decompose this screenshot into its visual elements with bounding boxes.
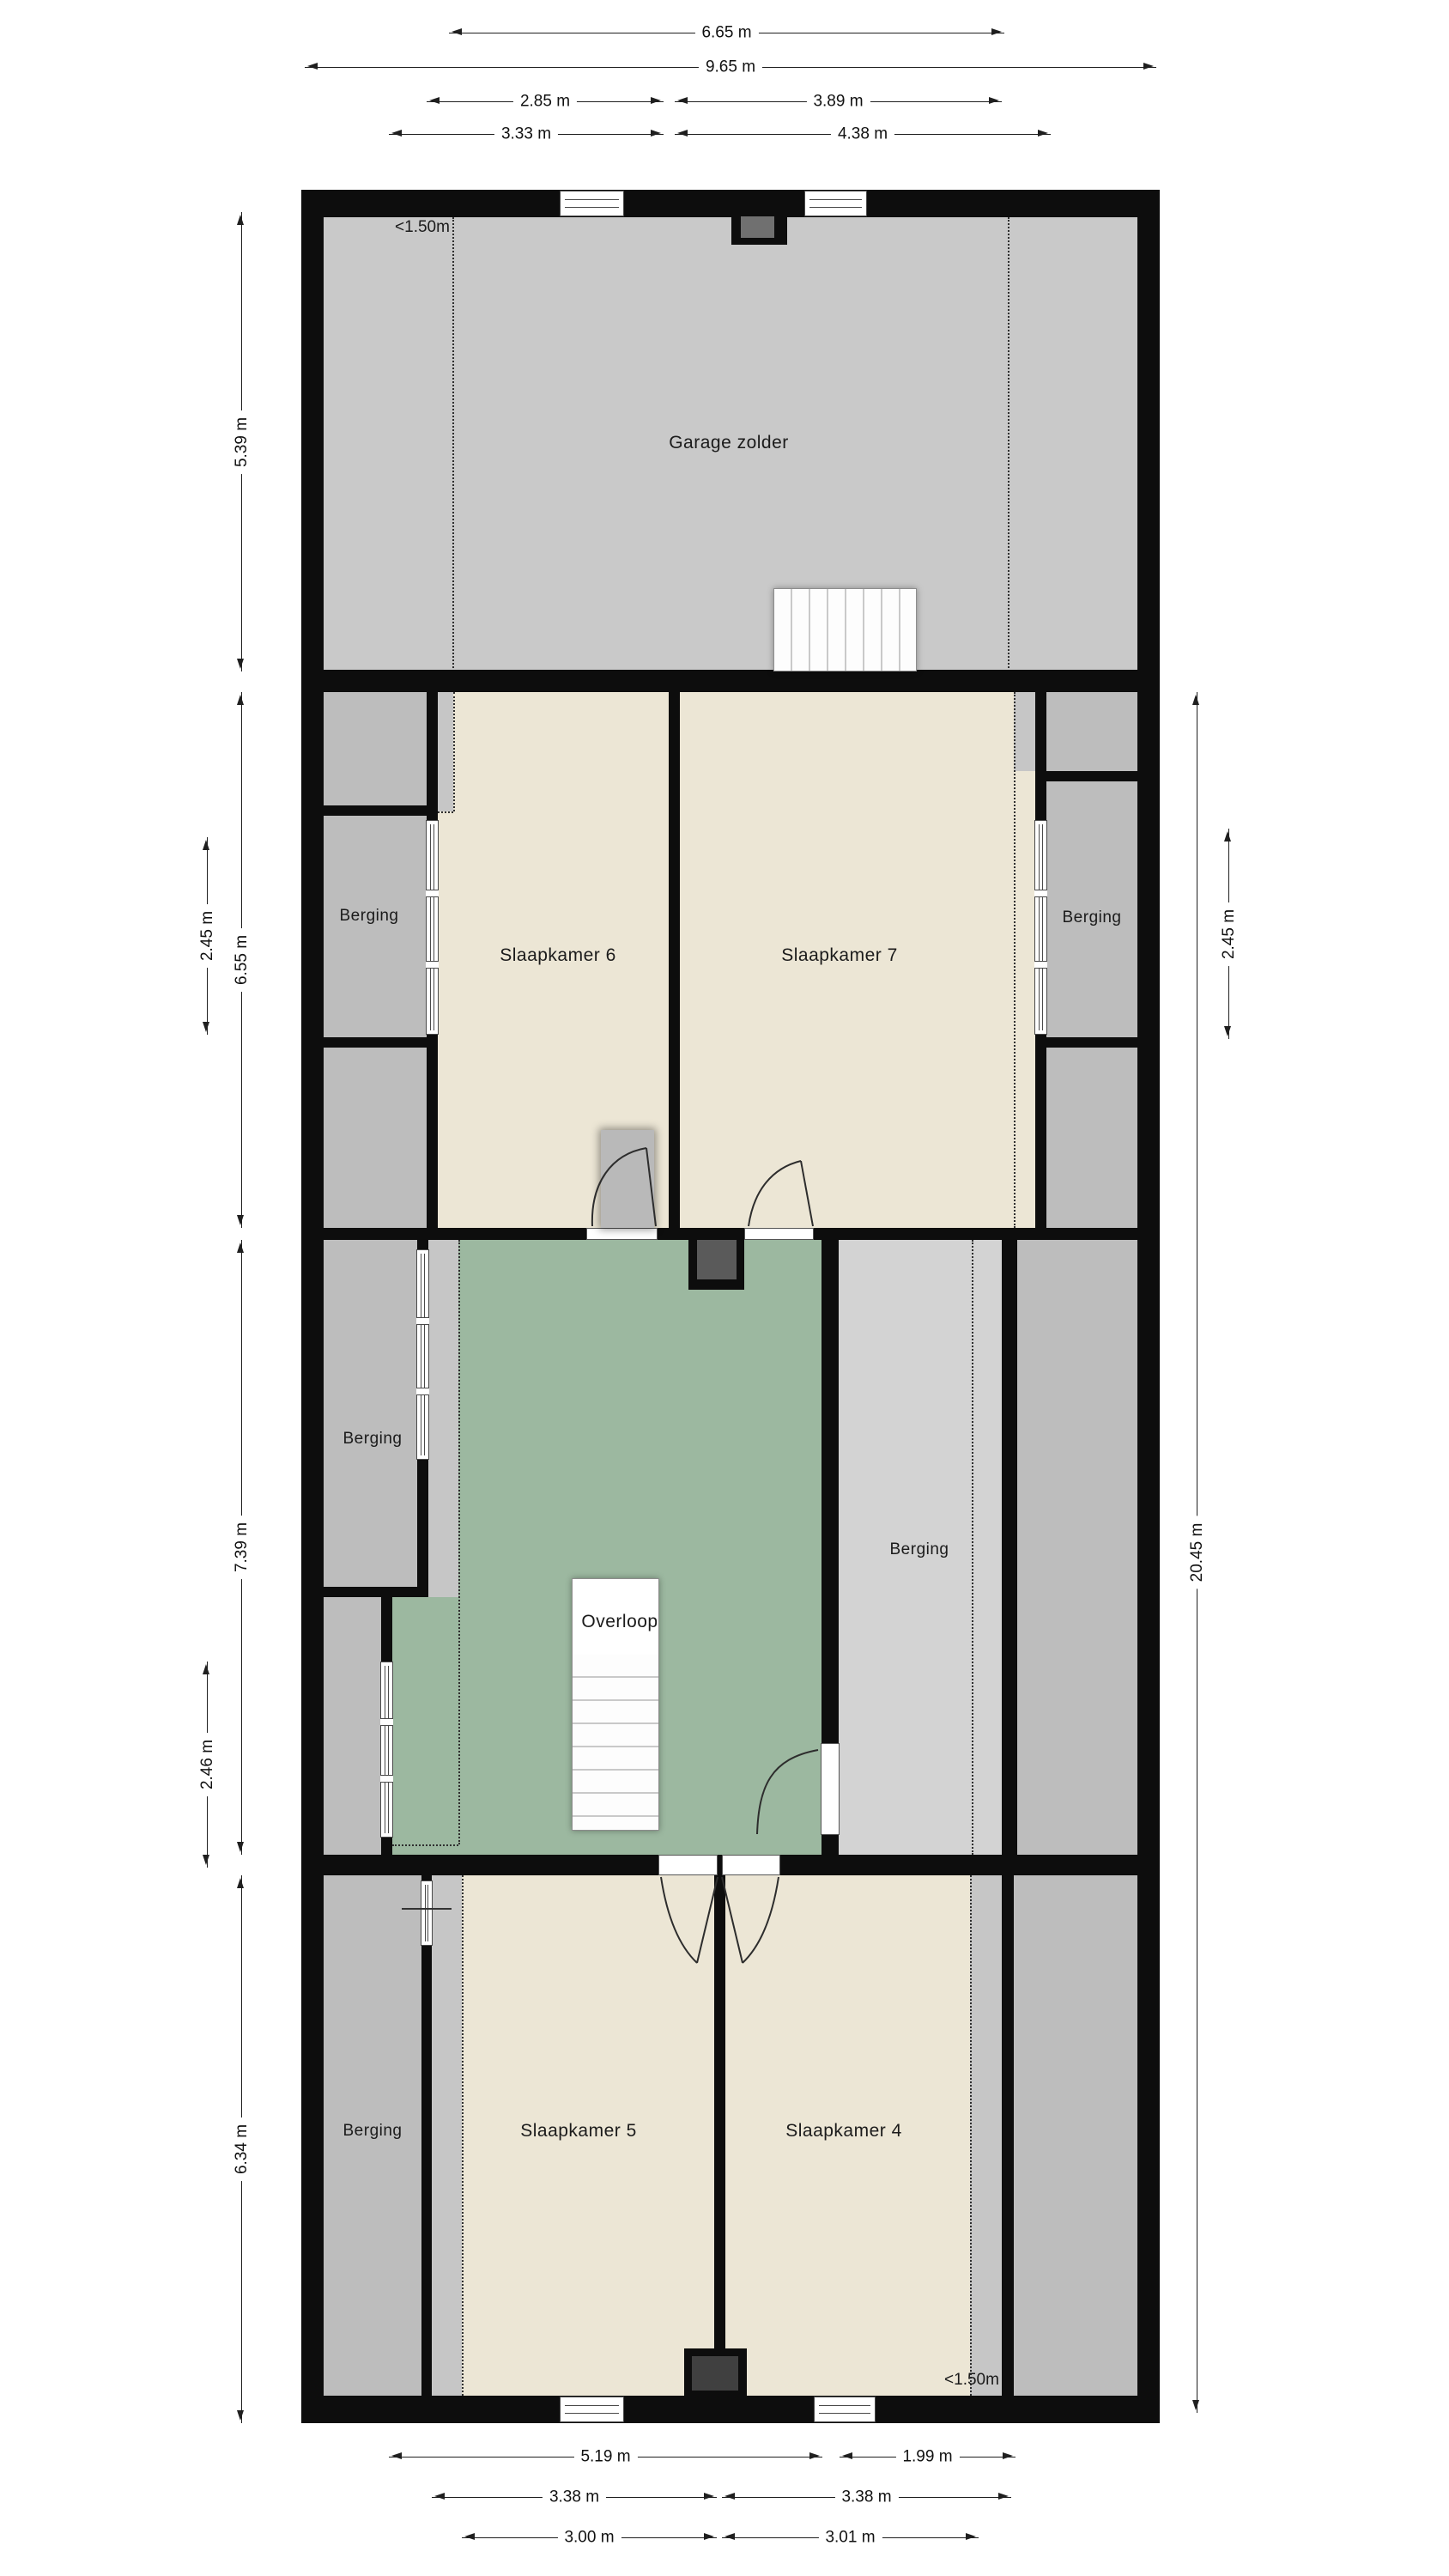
- wall: [1035, 692, 1046, 820]
- dim-label: 1.99 m: [895, 2448, 959, 2467]
- wall: [324, 805, 438, 816]
- dim-top-438: 4.38 m: [675, 134, 1051, 135]
- dim-label: 6.65 m: [694, 24, 758, 43]
- window-divider: [1034, 961, 1047, 969]
- window-glazing: [565, 199, 619, 208]
- wall: [1035, 771, 1137, 781]
- dim-right-2045: 20.45 m: [1197, 692, 1197, 2413]
- dim-label: 3.89 m: [806, 93, 870, 112]
- height-limit-note: <1.50m: [395, 218, 450, 237]
- slope-line: [970, 1875, 972, 2396]
- wall: [427, 692, 438, 820]
- window: [426, 820, 439, 1035]
- wall-s5-s4-divider: [714, 1875, 725, 2396]
- wall-outer-left: [301, 190, 324, 2423]
- dim-label: 4.38 m: [831, 125, 894, 144]
- window: [804, 191, 867, 216]
- dim-bottom-300: 3.00 m: [462, 2537, 717, 2538]
- window-glazing: [819, 2405, 870, 2414]
- window: [560, 191, 624, 216]
- stair-treads: [573, 1655, 658, 1830]
- wall-outer-bottom: [301, 2396, 1160, 2423]
- dim-bottom-199: 1.99 m: [840, 2457, 1016, 2458]
- window-divider: [416, 1388, 429, 1395]
- window-tick: [402, 1908, 452, 1910]
- dim-top-285: 2.85 m: [427, 101, 664, 102]
- dim-label: 20.45 m: [1188, 1516, 1207, 1589]
- chimney-core: [697, 1240, 737, 1279]
- slope-strip: [432, 1875, 462, 2396]
- wall: [1002, 1240, 1017, 1855]
- slope-line: [452, 217, 454, 671]
- window: [416, 1249, 429, 1460]
- dim-top-389: 3.89 m: [675, 101, 1002, 102]
- wall-s6-s7-divider: [669, 692, 680, 1240]
- wall-overloop-south: [780, 1855, 1137, 1875]
- dim-label: 3.33 m: [494, 125, 558, 144]
- room-label-slaapkamer6: Slaapkamer 6: [500, 945, 616, 966]
- stairs-garage: [773, 588, 917, 671]
- dim-left-655: 6.55 m: [241, 692, 242, 1228]
- dim-left-246: 2.46 m: [207, 1662, 208, 1868]
- dim-bottom-301: 3.01 m: [722, 2537, 979, 2538]
- dim-label: 2.45 m: [1220, 902, 1239, 965]
- room-label-slaapkamer4: Slaapkamer 4: [785, 2121, 902, 2142]
- wall: [324, 1037, 438, 1048]
- dim-label: 2.45 m: [198, 904, 217, 968]
- storage-column-mid-left: [324, 692, 438, 1228]
- wall: [1002, 1875, 1014, 2396]
- window-divider: [380, 1718, 393, 1726]
- dim-label: 2.85 m: [513, 93, 577, 112]
- dim-top-965: 9.65 m: [305, 67, 1156, 68]
- slope-strip: [970, 1875, 1002, 2396]
- wall: [417, 1240, 428, 1249]
- window: [380, 1662, 393, 1838]
- dim-label: 3.38 m: [834, 2488, 898, 2507]
- room-overloop-floor-west: [392, 1597, 458, 1855]
- door-sill: [744, 1228, 814, 1240]
- slope-line: [972, 1240, 973, 1855]
- dim-right-245: 2.45 m: [1228, 829, 1229, 1039]
- window-glazing: [565, 2405, 619, 2414]
- window-divider: [1034, 890, 1047, 897]
- window-glazing: [425, 1885, 428, 1941]
- slope-line: [1014, 692, 1016, 1228]
- dim-label: 7.39 m: [233, 1516, 252, 1579]
- room-label-berging-mid-left: Berging: [340, 907, 399, 926]
- chimney: [731, 191, 787, 245]
- window-divider: [416, 1317, 429, 1325]
- stair-treads: [774, 589, 916, 671]
- floorplan-canvas: 6.65 m 9.65 m 2.85 m 3.89 m 3.33 m 4.38 …: [0, 0, 1449, 2576]
- chimney-core: [741, 216, 774, 238]
- dim-left-539: 5.39 m: [241, 212, 242, 671]
- door-sill: [722, 1855, 780, 1875]
- dim-label: 5.39 m: [233, 410, 252, 473]
- room-label-garage: Garage zolder: [669, 433, 789, 453]
- window: [814, 2397, 876, 2422]
- wall: [381, 1597, 392, 1662]
- height-limit-note: <1.50m: [944, 2371, 999, 2390]
- room-label-berging-overloop-left: Berging: [343, 1430, 403, 1449]
- slope-line: [438, 811, 453, 813]
- door-leaf: [821, 1743, 840, 1835]
- chimney-core: [692, 2356, 738, 2391]
- wall: [324, 1587, 428, 1597]
- window: [421, 1880, 433, 1946]
- door-sill: [658, 1855, 718, 1875]
- dim-bottom-338b: 3.38 m: [722, 2497, 1011, 2498]
- wall: [427, 1035, 438, 1228]
- wall-outer-top: [301, 190, 1160, 217]
- room-label-berging-bottom: Berging: [343, 2122, 403, 2141]
- wall-overloop-north: [324, 1228, 586, 1240]
- storage-column-bottom-right: [1014, 1875, 1137, 2396]
- slope-strip: [1014, 692, 1035, 771]
- storage-column-overloop-far-right: [1017, 1240, 1137, 1855]
- window: [1034, 820, 1047, 1035]
- dim-top-333: 3.33 m: [389, 134, 664, 135]
- room-label-slaapkamer7: Slaapkamer 7: [781, 945, 898, 966]
- wall-overloop-south: [324, 1855, 658, 1875]
- room-label-berging-overloop-right: Berging: [890, 1540, 949, 1559]
- wall-outer-right: [1137, 190, 1160, 2423]
- window-divider: [426, 890, 439, 897]
- window-glazing: [809, 199, 862, 208]
- window-divider: [426, 961, 439, 969]
- window-glazing: [421, 1254, 425, 1455]
- slope-line: [462, 1875, 464, 2396]
- wall-overloop-berging: [822, 1240, 839, 1743]
- window-glazing: [1039, 824, 1043, 1030]
- window-divider: [380, 1775, 393, 1783]
- wall-garage-south: [324, 670, 1137, 692]
- dim-label: 6.34 m: [233, 2117, 252, 2181]
- slope-line: [458, 1240, 460, 1844]
- dim-label: 3.01 m: [818, 2529, 882, 2548]
- wall: [1035, 1037, 1137, 1048]
- wall-overloop-berging: [822, 1835, 839, 1855]
- dim-left-245: 2.45 m: [207, 837, 208, 1035]
- window: [560, 2397, 624, 2422]
- wall: [381, 1838, 392, 1855]
- wall: [421, 1946, 432, 2396]
- closet: [601, 1130, 654, 1228]
- dim-bottom-519: 5.19 m: [389, 2457, 822, 2458]
- wall: [1035, 1035, 1046, 1228]
- slope-line: [453, 692, 455, 811]
- room-label-berging-mid-right: Berging: [1063, 908, 1122, 927]
- wall-overloop-north: [814, 1228, 1137, 1240]
- window-glazing: [430, 824, 434, 1030]
- dim-left-634: 6.34 m: [241, 1875, 242, 2423]
- slope-line: [392, 1844, 458, 1846]
- dim-label: 3.00 m: [557, 2529, 621, 2548]
- dim-left-739: 7.39 m: [241, 1240, 242, 1855]
- dim-bottom-338a: 3.38 m: [432, 2497, 717, 2498]
- dim-label: 5.19 m: [573, 2448, 637, 2467]
- slope-line: [1008, 217, 1009, 671]
- room-label-slaapkamer5: Slaapkamer 5: [520, 2121, 637, 2142]
- window-glazing: [385, 1666, 389, 1833]
- chimney: [684, 2348, 747, 2396]
- dim-label: 9.65 m: [699, 58, 762, 77]
- chimney: [688, 1228, 744, 1290]
- room-label-overloop: Overloop: [581, 1612, 658, 1632]
- door-sill: [586, 1228, 658, 1240]
- dim-label: 3.38 m: [543, 2488, 606, 2507]
- dim-label: 2.46 m: [198, 1733, 217, 1796]
- slope-strip: [438, 692, 453, 811]
- wall: [417, 1460, 428, 1587]
- dim-label: 6.55 m: [233, 928, 252, 992]
- slope-strip: [428, 1240, 458, 1597]
- dim-top-665: 6.65 m: [449, 33, 1004, 33]
